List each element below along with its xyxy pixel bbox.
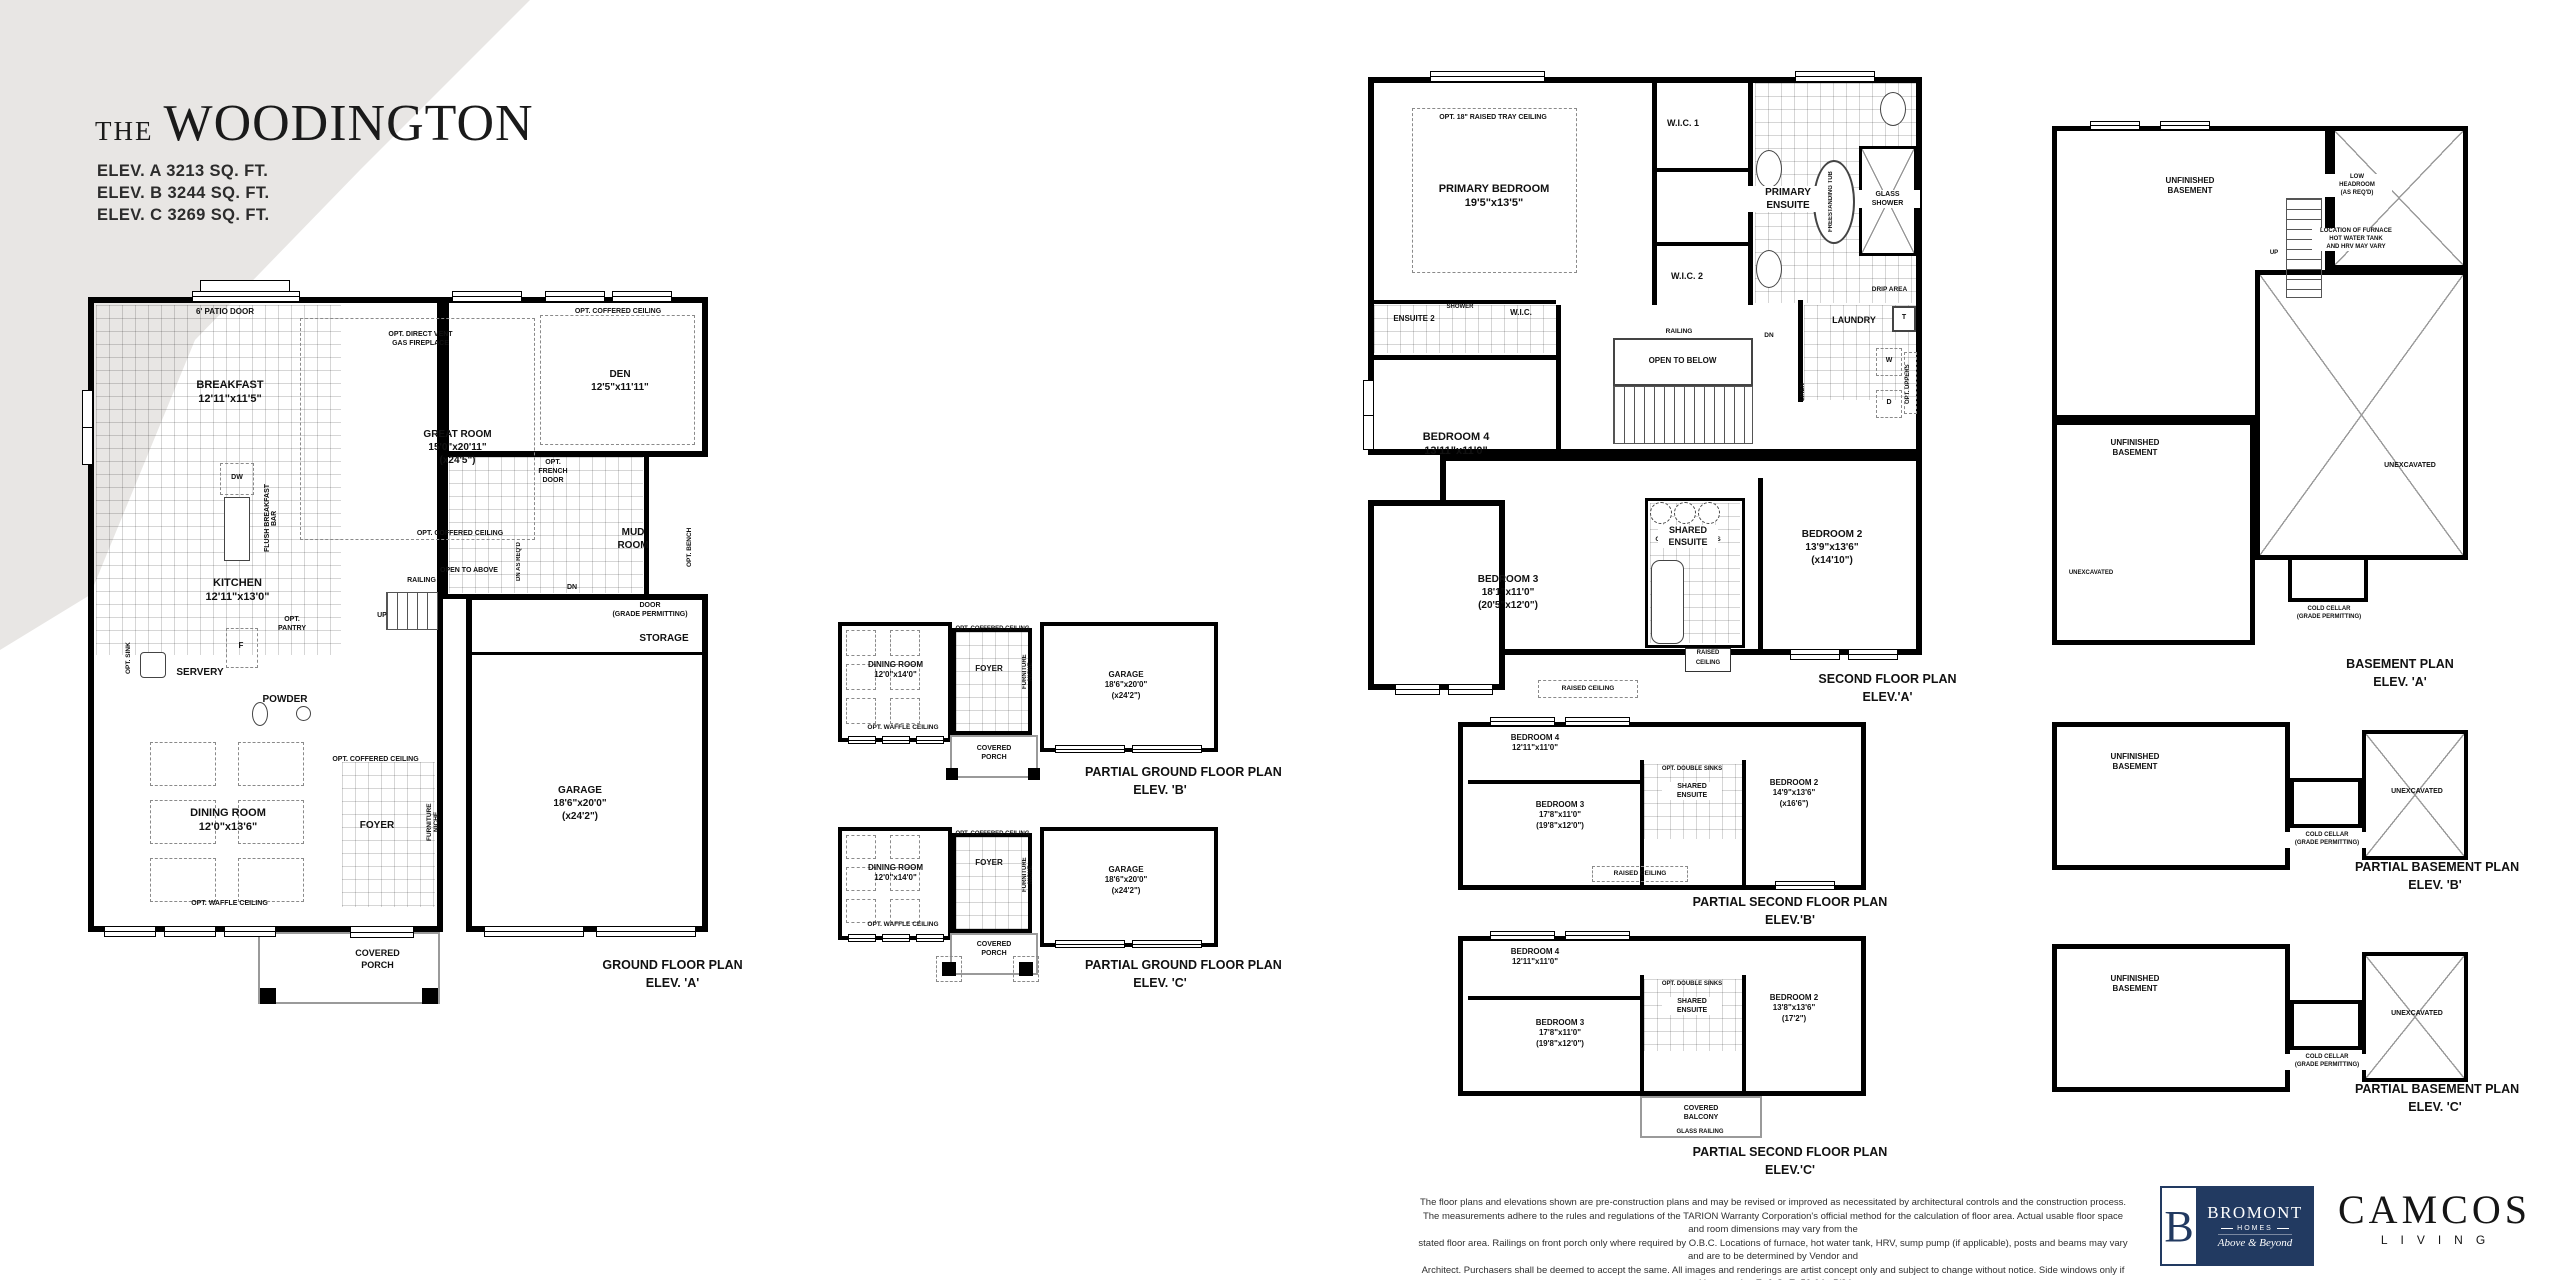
window-marker <box>612 291 672 302</box>
label-fridge: F <box>228 641 254 650</box>
bromont-name: BROMONT <box>2207 1203 2303 1223</box>
label-storage: STORAGE <box>614 633 714 644</box>
label-line: COVERED <box>340 948 415 960</box>
waffle-ceiling-box <box>150 742 216 786</box>
label-line: BASEMENT <box>2080 448 2190 458</box>
label-line: SHARED <box>1662 997 1722 1006</box>
label-line: COLD CELLAR <box>2284 606 2374 614</box>
label-coffered-ceiling: OPT. COFFERED CEILING <box>955 831 1030 837</box>
caption-ground-floor-a: GROUND FLOOR PLAN ELEV. 'A' <box>600 956 745 992</box>
window-marker <box>545 291 605 302</box>
label-unexcavated: UNEXCAVATED <box>2372 788 2462 795</box>
label-line: 18'1"x11'0" <box>1447 586 1569 599</box>
tile-floor-area <box>956 837 1028 929</box>
label-raised-ceiling: RAISED CEILING <box>1595 870 1685 877</box>
label-line: SHOWER <box>1855 199 1920 208</box>
label-line: OPT. <box>262 615 322 624</box>
label-line: 18'6"x20'0" <box>520 797 640 810</box>
window-marker <box>1395 684 1440 695</box>
waffle-ceiling-box <box>890 698 920 724</box>
label-shared-ensuite: SHARED ENSUITE <box>1658 525 1718 548</box>
window-marker <box>1848 649 1898 660</box>
label-line: GARAGE <box>1078 865 1174 875</box>
label-low-headroom: LOW HEADROOM (AS REQ'D) <box>2322 174 2392 197</box>
toilet-icon <box>1880 92 1906 126</box>
label-line: COVERED <box>965 940 1023 949</box>
label-covered-porch: COVERED PORCH <box>965 940 1023 958</box>
window-marker <box>104 926 156 937</box>
window-marker <box>916 736 944 744</box>
label-waffle-ceiling: OPT. WAFFLE CEILING <box>858 724 948 731</box>
label-line: 12'11"x11'5" <box>165 392 295 406</box>
label-line: (AS REQ'D) <box>2322 190 2392 198</box>
tile-floor-area <box>956 632 1028 731</box>
label-line: UNFINISHED <box>2080 438 2190 448</box>
garage-door-marker <box>1132 940 1202 948</box>
bromont-tagline: Above & Beyond <box>2218 1234 2293 1249</box>
label-line: BEDROOM 4 <box>1390 430 1522 444</box>
label-raised-ceiling-boxed: RAISED CEILING <box>1685 648 1731 672</box>
label-kitchen: KITCHEN 12'11"x13'0" <box>175 576 300 605</box>
label-furniture-niche: FURNITURE NICHE <box>1022 650 1031 694</box>
label-laundry: LAUNDRY <box>1818 315 1890 325</box>
label-unfinished-basement: UNFINISHED BASEMENT <box>2080 752 2190 773</box>
label-line: (17'2") <box>1740 1014 1848 1024</box>
label-unexcavated: UNEXCAVATED <box>2056 570 2126 576</box>
cold-cellar-room <box>2290 778 2362 828</box>
label-dn: DN <box>1756 332 1782 339</box>
label-line: BEDROOM 4 <box>1480 947 1590 957</box>
label-line: (x14'10") <box>1773 554 1891 567</box>
label-line: ROOM <box>598 539 668 552</box>
window-marker <box>1565 717 1630 726</box>
label-line: UNFINISHED <box>2080 974 2190 984</box>
label-line: ENSUITE <box>1662 1006 1722 1015</box>
label-washer: W <box>1878 357 1900 364</box>
label-bedroom-2: BEDROOM 2 14'9"x13'6" (x16'6") <box>1740 778 1848 809</box>
label-line: MUD <box>598 526 668 539</box>
label-line: DINING ROOM <box>162 806 294 820</box>
caption-line: BASEMENT PLAN <box>2330 655 2470 673</box>
label-dn: DN <box>558 584 586 591</box>
window-marker <box>1363 380 1374 450</box>
label-dining-room: DINING ROOM 12'0"x14'0" <box>843 863 948 884</box>
label-flush-breakfast-bar: FLUSH BREAKFAST BAR <box>264 478 274 558</box>
label-line: PORCH <box>965 753 1023 762</box>
label-line: (GRADE PERMITTING) <box>2282 840 2372 848</box>
label-line: AND HRV MAY VARY <box>2312 244 2400 252</box>
label-unexcavated: UNEXCAVATED <box>2355 462 2465 469</box>
label-line: KITCHEN <box>175 576 300 590</box>
label-line: (GRADE PERMITTING) <box>598 610 702 619</box>
caption-partial-second-c: PARTIAL SECOND FLOOR PLAN ELEV.'C' <box>1690 1143 1890 1179</box>
stairs <box>1613 386 1753 444</box>
label-line: PRIMARY <box>1748 186 1828 199</box>
label-line: OPT. <box>528 458 578 467</box>
porch-post <box>1028 768 1040 780</box>
label-unfinished-basement: UNFINISHED BASEMENT <box>2080 974 2190 995</box>
porch-post <box>422 988 438 1004</box>
window-marker <box>82 390 93 465</box>
sink-icon <box>1756 250 1782 288</box>
label-line: BASEMENT <box>2080 762 2190 772</box>
label-dishwasher: DW <box>222 474 252 481</box>
label-primary-bedroom: PRIMARY BEDROOM 19'5"x13'5" <box>1414 182 1574 211</box>
wall-outline <box>2052 944 2290 1092</box>
label-line: 15'0"x20'11" <box>385 441 530 454</box>
waffle-ceiling-box <box>846 698 876 724</box>
label-line: COVERED <box>965 744 1023 753</box>
label-line: (19'8"x12'0") <box>1500 821 1620 831</box>
label-opt-double-sinks: OPT. DOUBLE SINKS <box>1648 981 1736 987</box>
waffle-ceiling-box <box>150 858 216 902</box>
label-line: 17'8"x11'0" <box>1500 810 1620 820</box>
label-coffered-ceiling: OPT. COFFERED CEILING <box>955 626 1030 632</box>
caption-line: PARTIAL GROUND FLOOR PLAN <box>1085 956 1235 974</box>
label-line: DINING ROOM <box>843 660 948 670</box>
label-freestanding-tub: FREESTANDING TUB <box>1828 170 1838 234</box>
sink-icon <box>296 706 311 721</box>
waffle-ceiling-box <box>846 835 876 859</box>
label-line: PANTRY <box>262 624 322 633</box>
waffle-ceiling-box <box>890 835 920 859</box>
label-line: (x16'6") <box>1740 799 1848 809</box>
porch-post <box>260 988 276 1004</box>
label-coffered-ceiling: OPT. COFFERED CEILING <box>390 530 530 537</box>
label-line: 12'11"x11'0" <box>1480 743 1590 753</box>
disclaimer-text: The floor plans and elevations shown are… <box>1418 1196 2128 1280</box>
caption-line: PARTIAL SECOND FLOOR PLAN <box>1690 1143 1890 1161</box>
label-line: RAISED <box>1697 650 1720 656</box>
label-cold-cellar: COLD CELLAR (GRADE PERMITTING) <box>2282 1054 2372 1070</box>
window-marker <box>2160 121 2210 130</box>
label-line: 12'5"x11'11" <box>570 381 670 394</box>
label-bedroom-4: BEDROOM 4 12'11"x11'0" <box>1480 733 1590 754</box>
label-patio-door: 6' PATIO DOOR <box>180 307 270 316</box>
porch-post <box>942 962 956 976</box>
label-furniture-niche: FURNITURE NICHE <box>1022 853 1031 897</box>
wall-segment <box>1652 242 1750 246</box>
disclaimer-line: stated floor area. Railings on front por… <box>1418 1237 2128 1264</box>
bromont-homes-logo: B BROMONT HOMES Above & Beyond <box>2160 1186 2314 1266</box>
caption-partial-basement-b: PARTIAL BASEMENT PLAN ELEV. 'B' <box>2355 858 2515 894</box>
wall-segment <box>472 652 702 655</box>
label-furnace-note: LOCATION OF FURNACE HOT WATER TANK AND H… <box>2312 228 2400 251</box>
label-line: 17'8"x11'0" <box>1500 1028 1620 1038</box>
label-open-to-below: OPEN TO BELOW <box>1640 356 1725 365</box>
caption-line: ELEV.'A' <box>1815 688 1960 706</box>
disclaimer-line: The measurements adhere to the rules and… <box>1418 1210 2128 1237</box>
wall-outline <box>2052 722 2290 870</box>
tile-floor-area <box>342 762 435 907</box>
label-line: (x24'2") <box>1078 886 1174 896</box>
page-title: THEWOODINGTON <box>95 94 534 153</box>
label-breakfast: BREAKFAST 12'11"x11'5" <box>165 378 295 407</box>
label-line: (x24'5") <box>385 454 530 467</box>
label-foyer: FOYER <box>958 664 1020 673</box>
caption-line: ELEV.'C' <box>1690 1161 1890 1179</box>
camcos-living-logo: CAMCOS LIVING <box>2338 1188 2528 1247</box>
garage-door-marker <box>1055 940 1125 948</box>
label-line: (GRADE PERMITTING) <box>2282 1062 2372 1070</box>
label-covered-balcony: COVERED BALCONY <box>1666 1104 1736 1122</box>
label-line: 18'6"x20'0" <box>1078 875 1174 885</box>
caption-line: ELEV. 'A' <box>600 974 745 992</box>
label-line: (GRADE PERMITTING) <box>2284 614 2374 622</box>
window-marker <box>882 736 910 744</box>
label-unfinished-basement: UNFINISHED BASEMENT <box>2130 176 2250 197</box>
label-line: 12'11"x13'0" <box>175 590 300 604</box>
label-line: BEDROOM 3 <box>1500 800 1620 810</box>
bromont-homes-text: HOMES <box>2237 1225 2273 1232</box>
label-line: 13'8"x13'6" <box>1740 1003 1848 1013</box>
caption-line: ELEV. 'B' <box>1085 781 1235 799</box>
label-garage: GARAGE 18'6"x20'0" (x24'2") <box>1078 865 1174 896</box>
label-mud-room: MUD ROOM <box>598 526 668 552</box>
caption-line: ELEV. 'C' <box>2355 1098 2515 1116</box>
caption-line: PARTIAL BASEMENT PLAN <box>2355 858 2515 876</box>
label-wic: W.I.C. <box>1496 308 1546 317</box>
label-line: BALCONY <box>1666 1113 1736 1122</box>
label-line: GAS FIREPLACE <box>378 339 463 348</box>
label-covered-porch: COVERED PORCH <box>340 948 415 971</box>
waffle-ceiling-box <box>238 858 304 902</box>
label-line: UNFINISHED <box>2080 752 2190 762</box>
label-bedroom-2: BEDROOM 2 13'8"x13'6" (17'2") <box>1740 993 1848 1024</box>
garage-door-marker <box>1132 745 1202 753</box>
label-bedroom-4: BEDROOM 4 13'11"x11'0" <box>1390 430 1522 459</box>
label-line: DOOR <box>528 476 578 485</box>
label-opt-double-sinks: OPT. DOUBLE SINKS <box>1648 766 1736 772</box>
label-line: PRIMARY BEDROOM <box>1414 182 1574 196</box>
bromont-homes-line: HOMES <box>2221 1225 2289 1232</box>
label-line: COLD CELLAR <box>2282 1054 2372 1062</box>
label-glass-shower: GLASS SHOWER <box>1855 190 1920 208</box>
disclaimer-line: The floor plans and elevations shown are… <box>1418 1196 2128 1210</box>
label-wic-2: W.I.C. 2 <box>1647 271 1727 281</box>
label-line: 13'11"x11'0" <box>1390 444 1522 458</box>
porch-post <box>946 768 958 780</box>
caption-partial-basement-c: PARTIAL BASEMENT PLAN ELEV. 'C' <box>2355 1080 2515 1116</box>
label-door-grade: DOOR (GRADE PERMITTING) <box>598 601 702 619</box>
label-line: LOW <box>2322 174 2392 182</box>
label-up: UP <box>370 612 394 619</box>
cold-cellar-room <box>2290 1000 2362 1050</box>
label-line: 12'0"x13'6" <box>162 820 294 834</box>
elev-a-sqft: ELEV. A 3213 SQ. FT. <box>97 160 269 182</box>
unexcavated-area <box>2362 952 2468 1082</box>
label-primary-ensuite: PRIMARY ENSUITE <box>1748 186 1828 212</box>
wall-segment <box>1652 168 1750 172</box>
label-line: 19'5"x13'5" <box>1414 196 1574 210</box>
label-line: GARAGE <box>520 784 640 797</box>
label-railing: RAILING <box>1653 328 1705 335</box>
sink-icon <box>1674 502 1696 524</box>
window-marker <box>1490 931 1555 940</box>
label-shared-ensuite: SHARED ENSUITE <box>1662 782 1722 800</box>
label-line: BEDROOM 2 <box>1740 993 1848 1003</box>
front-door-marker <box>350 926 414 938</box>
label-line: PORCH <box>965 949 1023 958</box>
label-drip-area: DRIP AREA <box>1862 286 1917 293</box>
label-line: COLD CELLAR <box>2282 832 2372 840</box>
label-up: UP <box>2264 250 2284 256</box>
label-den: DEN 12'5"x11'11" <box>570 368 670 394</box>
label-line: (x24'2") <box>520 810 640 823</box>
camcos-name: CAMCOS <box>2338 1188 2528 1232</box>
wall-segment <box>1468 780 1640 784</box>
window-marker <box>1490 717 1555 726</box>
label-shared-ensuite: SHARED ENSUITE <box>1662 997 1722 1015</box>
kitchen-island <box>224 497 250 561</box>
label-line: (x24'2") <box>1078 691 1174 701</box>
label-powder: POWDER <box>240 694 330 705</box>
wall-outline <box>466 594 708 932</box>
label-line: COVERED <box>1666 1104 1736 1113</box>
tile-floor-area <box>1644 764 1742 839</box>
window-marker <box>1448 684 1493 695</box>
label-line: ENSUITE <box>1658 537 1718 549</box>
label-opt-bench: OPT. BENCH <box>686 520 696 574</box>
window-marker <box>164 926 216 937</box>
label-open-to-above: OPEN TO ABOVE <box>428 567 510 574</box>
garage-door-marker <box>596 926 696 937</box>
title-the: THE <box>95 116 153 146</box>
wall-segment <box>1758 478 1763 655</box>
label-line: HOT WATER TANK <box>2312 236 2400 244</box>
label-linen: LINEN <box>1800 372 1809 412</box>
label-line: CEILING <box>1696 660 1720 666</box>
caption-line: ELEV. 'A' <box>2330 673 2470 691</box>
title-name: WOODINGTON <box>163 95 533 152</box>
caption-partial-second-b: PARTIAL SECOND FLOOR PLAN ELEV.'B' <box>1690 893 1890 929</box>
label-waffle-ceiling: OPT. WAFFLE CEILING <box>162 900 297 907</box>
window-marker <box>848 934 876 942</box>
label-line: GREAT ROOM <box>385 428 530 441</box>
window-marker <box>1565 931 1630 940</box>
label-line: 14'9"x13'6" <box>1740 788 1848 798</box>
label-furniture-niche: FURNITURE NICHE <box>426 793 436 851</box>
floor-plan-sheet: THEWOODINGTON ELEV. A 3213 SQ. FT. ELEV.… <box>0 0 2560 1280</box>
label-bedroom-3: BEDROOM 3 17'8"x11'0" (19'8"x12'0") <box>1500 1018 1620 1049</box>
caption-line: ELEV.'B' <box>1690 911 1890 929</box>
waffle-ceiling-box <box>890 630 920 656</box>
label-line: 12'11"x11'0" <box>1480 957 1590 967</box>
label-line: LOCATION OF FURNACE <box>2312 228 2400 236</box>
caption-second-floor-a: SECOND FLOOR PLAN ELEV.'A' <box>1815 670 1960 706</box>
label-railing: RAILING <box>394 577 449 584</box>
label-line: 12'0"x14'0" <box>843 873 948 883</box>
window-marker <box>882 934 910 942</box>
label-unfinished-basement: UNFINISHED BASEMENT <box>2080 438 2190 459</box>
toilet-icon <box>252 702 268 726</box>
window-marker <box>1795 71 1875 82</box>
caption-line: SECOND FLOOR PLAN <box>1815 670 1960 688</box>
label-gas-fireplace: OPT. DIRECT VENT GAS FIREPLACE <box>378 330 463 348</box>
label-line: BEDROOM 3 <box>1500 1018 1620 1028</box>
label-raised-ceiling: RAISED CEILING <box>1543 685 1633 692</box>
label-line: BEDROOM 2 <box>1773 528 1891 541</box>
patio-door-marker <box>192 291 300 302</box>
label-line: SHARED <box>1658 525 1718 537</box>
elevation-areas: ELEV. A 3213 SQ. FT. ELEV. B 3244 SQ. FT… <box>97 160 269 226</box>
caption-line: PARTIAL SECOND FLOOR PLAN <box>1690 893 1890 911</box>
label-tub: T <box>1893 314 1915 321</box>
label-cold-cellar: COLD CELLAR (GRADE PERMITTING) <box>2282 832 2372 848</box>
label-line: OPT. DIRECT VENT <box>378 330 463 339</box>
window-marker <box>452 291 522 302</box>
window-marker <box>1790 649 1840 660</box>
caption-partial-ground-b: PARTIAL GROUND FLOOR PLAN ELEV. 'B' <box>1085 763 1235 799</box>
sink-icon <box>1756 150 1782 188</box>
elev-c-sqft: ELEV. C 3269 SQ. FT. <box>97 204 269 226</box>
label-line: BREAKFAST <box>165 378 295 392</box>
label-line: BEDROOM 3 <box>1447 573 1569 586</box>
bathtub-icon <box>1651 560 1684 644</box>
label-opt-uppers: OPT. UPPERS <box>1905 358 1915 410</box>
label-dining-room: DINING ROOM 12'0"x13'6" <box>162 806 294 835</box>
label-garage: GARAGE 18'6"x20'0" (x24'2") <box>1078 670 1174 701</box>
label-unexcavated: UNEXCAVATED <box>2372 1010 2462 1017</box>
label-line: BEDROOM 4 <box>1480 733 1590 743</box>
garage-door-marker <box>484 926 584 937</box>
caption-basement-a: BASEMENT PLAN ELEV. 'A' <box>2330 655 2470 691</box>
waffle-ceiling-box <box>846 630 876 656</box>
label-line: (20'5"x12'0") <box>1447 599 1569 612</box>
label-servery: SERVERY <box>160 667 240 678</box>
bromont-initial: B <box>2162 1188 2198 1264</box>
label-line: 18'6"x20'0" <box>1078 680 1174 690</box>
label-waffle-ceiling: OPT. WAFFLE CEILING <box>858 921 948 928</box>
disclaimer-line: Architect. Purchasers shall be deemed to… <box>1418 1264 2128 1280</box>
label-line: UNFINISHED <box>2130 176 2250 186</box>
cold-cellar-room <box>2288 556 2368 602</box>
label-foyer: FOYER <box>344 820 410 831</box>
caption-line: PARTIAL BASEMENT PLAN <box>2355 1080 2515 1098</box>
label-line: BASEMENT <box>2130 186 2250 196</box>
label-great-room: GREAT ROOM 15'0"x20'11" (x24'5") <box>385 428 530 467</box>
label-line: DINING ROOM <box>843 863 948 873</box>
caption-partial-ground-c: PARTIAL GROUND FLOOR PLAN ELEV. 'C' <box>1085 956 1235 992</box>
label-line: SHARED <box>1662 782 1722 791</box>
window-marker <box>848 736 876 744</box>
label-bedroom-3: BEDROOM 3 18'1"x11'0" (20'5"x12'0") <box>1447 573 1569 612</box>
wall-segment <box>1556 305 1561 455</box>
label-line: GARAGE <box>1078 670 1174 680</box>
label-ensuite-2: ENSUITE 2 <box>1378 314 1450 323</box>
caption-line: ELEV. 'C' <box>1085 974 1235 992</box>
label-line: DOOR <box>598 601 702 610</box>
label-cold-cellar: COLD CELLAR (GRADE PERMITTING) <box>2284 606 2374 622</box>
window-marker <box>1430 71 1545 82</box>
window-marker <box>224 926 276 937</box>
wall-segment <box>1468 996 1640 1000</box>
label-dryer: D <box>1878 399 1900 406</box>
label-bedroom-4: BEDROOM 4 12'11"x11'0" <box>1480 947 1590 968</box>
bromont-wordmark: BROMONT HOMES Above & Beyond <box>2198 1188 2312 1264</box>
elev-b-sqft: ELEV. B 3244 SQ. FT. <box>97 182 269 204</box>
label-dn-as-reqd: DN AS REQ'D <box>516 538 525 586</box>
label-line: HEADROOM <box>2322 182 2392 190</box>
label-tray-ceiling: OPT. 18" RAISED TRAY CEILING <box>1418 114 1568 121</box>
unexcavated-area <box>2362 730 2468 860</box>
label-line: BEDROOM 2 <box>1740 778 1848 788</box>
label-line: 13'9"x13'6" <box>1773 541 1891 554</box>
label-covered-porch: COVERED PORCH <box>965 744 1023 762</box>
label-line: GLASS <box>1855 190 1920 199</box>
garage-door-marker <box>1055 745 1125 753</box>
label-bedroom-3: BEDROOM 3 17'8"x11'0" (19'8"x12'0") <box>1500 800 1620 831</box>
